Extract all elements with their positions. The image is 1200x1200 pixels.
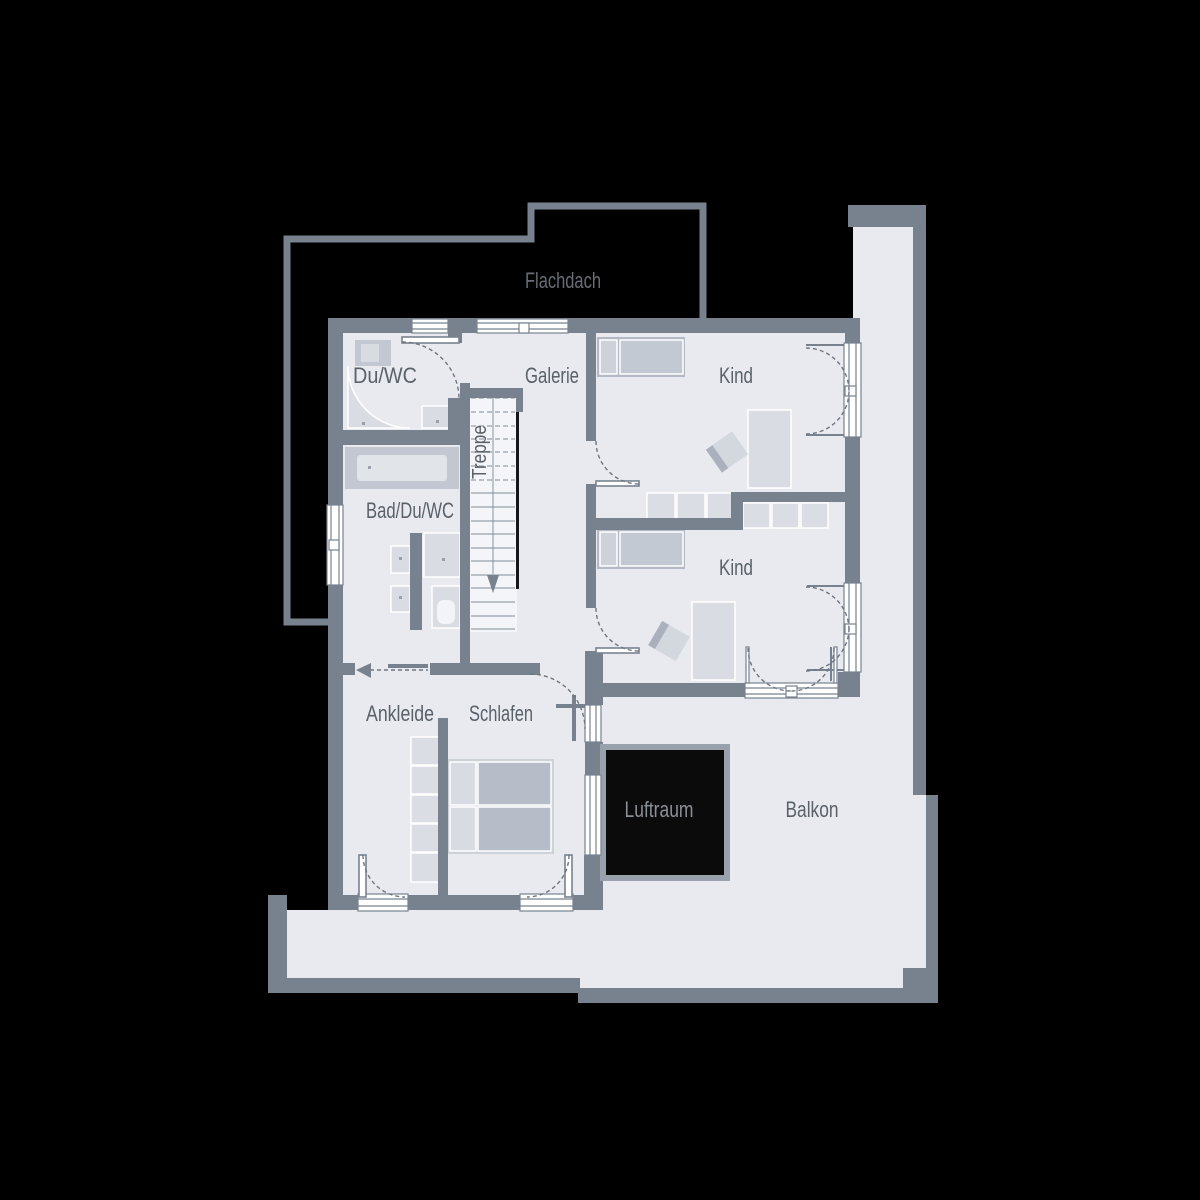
schlafen-door-leaf <box>565 855 572 897</box>
faucet-dot <box>399 596 402 599</box>
wall-stair-top <box>460 388 523 398</box>
wall-kind2-south-corner <box>838 672 860 697</box>
schlafen-door-leaf-post <box>572 695 576 741</box>
label-treppe: Treppe <box>469 425 491 479</box>
floorplan-drawing: Flachdach Du/WC Galerie Kind Kind Bad/Du… <box>0 0 1200 1200</box>
faucet-dot <box>362 422 365 425</box>
kind2-door-leaf <box>596 648 639 653</box>
label-galerie: Galerie <box>525 363 579 388</box>
duwc-sink <box>422 406 450 428</box>
wall-kind-divider-left <box>596 518 737 530</box>
kind1-bed <box>597 337 685 377</box>
wall-balkon-right <box>926 795 938 995</box>
wall-top <box>328 318 860 333</box>
ankleide-wardrobe <box>411 737 440 882</box>
bad-wc <box>432 586 460 628</box>
label-kind-2: Kind <box>719 555 753 580</box>
wall-stair-nub <box>516 390 523 412</box>
wall-hall-south-a <box>328 663 355 675</box>
label-kind-1: Kind <box>719 363 753 388</box>
label-flachdach: Flachdach <box>525 268 601 293</box>
bad-shower <box>424 533 460 577</box>
schlafen-bed <box>447 759 554 854</box>
kind2-bed <box>597 529 685 569</box>
floorplan-stage: Flachdach Du/WC Galerie Kind Kind Bad/Du… <box>0 0 1200 1200</box>
wall-west <box>328 318 343 910</box>
faucet-dot <box>442 558 445 561</box>
label-schlafen: Schlafen <box>469 701 533 726</box>
wall-balkon-corner <box>903 968 938 989</box>
wall-strip-right <box>913 205 926 795</box>
wall-kind-divider-right <box>737 492 845 502</box>
stair-railing <box>516 397 519 589</box>
bathtub <box>345 447 459 489</box>
kind2-wardrobe <box>743 503 828 528</box>
kind2-desk <box>692 602 735 680</box>
wall-hall-a <box>586 333 596 441</box>
wall-ankleide-divider <box>438 718 448 895</box>
glazing-schlafen-east-lower <box>585 775 601 855</box>
label-bad-du-wc: Bad/Du/WC <box>366 498 454 523</box>
label-ankleide: Ankleide <box>366 701 434 726</box>
kind1-wardrobe <box>647 493 736 521</box>
wall-duwc-east-b <box>448 398 462 432</box>
wall-kind2-south <box>596 683 745 697</box>
window-top-large <box>477 319 568 333</box>
label-luftraum: Luftraum <box>625 797 694 822</box>
wall-strip-top <box>848 205 926 227</box>
wall-duwc-bad <box>328 430 462 445</box>
label-du-wc: Du/WC <box>353 363 417 388</box>
kind1-door-leaf <box>596 481 639 486</box>
window-bad-west <box>327 505 343 585</box>
wall-bad-partition <box>410 533 422 630</box>
kind1-desk <box>748 410 791 488</box>
glazing-schlafen-east-upper <box>585 705 601 742</box>
faucet-dot <box>399 557 402 560</box>
wall-hall-b <box>586 484 596 608</box>
label-balkon: Balkon <box>786 797 839 822</box>
wall-terrace-bottom <box>268 978 580 993</box>
window-top-small <box>412 319 448 333</box>
ankleide-door-leaf <box>359 855 366 897</box>
wall-hall-south-b <box>430 663 540 675</box>
wall-balkon-bottom <box>578 988 938 1003</box>
faucet-dot <box>436 420 439 423</box>
